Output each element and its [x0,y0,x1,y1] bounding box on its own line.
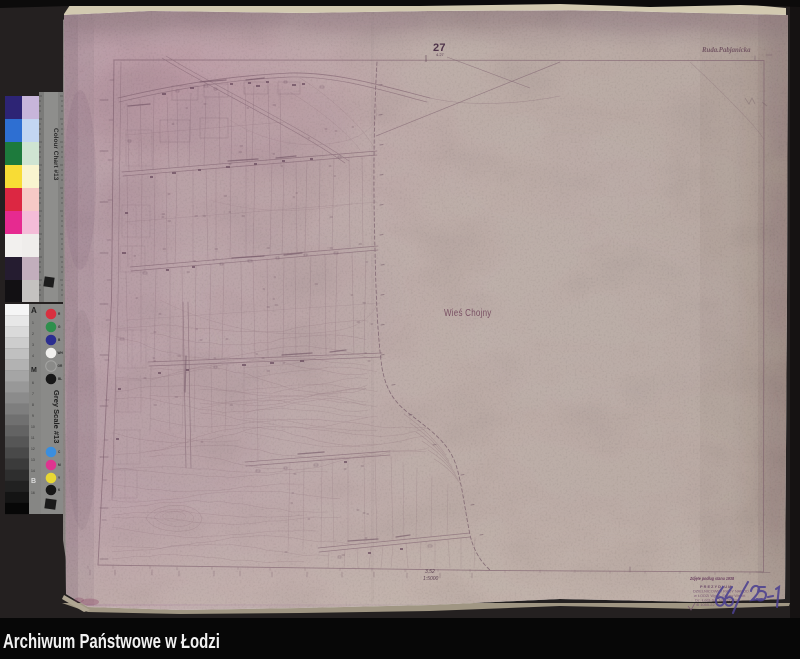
svg-text:1: 1 [32,321,34,325]
svg-text:10: 10 [31,425,35,429]
svg-text:9: 9 [32,414,34,418]
svg-text:17: 17 [31,502,35,506]
svg-text:3.52: 3.52 [425,569,435,575]
svg-text:M: M [58,463,61,467]
svg-text:3: 3 [32,343,34,347]
svg-text:Ruda.Pabjanicka: Ruda.Pabjanicka [701,47,751,54]
svg-text:16: 16 [31,491,35,495]
svg-text:A: A [31,306,37,315]
svg-text:7: 7 [32,392,34,396]
svg-text:Zdjęte podług stanu 1938: Zdjęte podług stanu 1938 [689,576,734,581]
svg-text:Grey Scale #13: Grey Scale #13 [52,390,61,443]
svg-text:Wieś Chojny: Wieś Chojny [444,307,492,318]
svg-text:4.27: 4.27 [436,52,445,57]
svg-text:B: B [31,478,36,485]
svg-text:M: M [31,367,37,374]
svg-text:BL: BL [58,377,62,381]
svg-text:⊛ 1055-22: ⊛ 1055-22 [696,602,715,607]
svg-text:Colour Chart #13: Colour Chart #13 [52,128,59,181]
svg-text:WH: WH [58,351,64,355]
svg-text:GR: GR [58,364,63,368]
svg-text:6: 6 [32,381,34,385]
svg-text:14: 14 [31,469,35,473]
svg-text:12: 12 [31,447,35,451]
svg-text:8: 8 [32,403,34,407]
svg-text:13: 13 [31,458,35,462]
svg-text:4: 4 [32,354,34,358]
svg-text:Archiwum Państwowe w Łodzi: Archiwum Państwowe w Łodzi [3,630,220,653]
svg-text:2: 2 [32,332,34,336]
svg-text:11: 11 [31,436,35,440]
svg-text:1:5000: 1:5000 [423,576,439,582]
